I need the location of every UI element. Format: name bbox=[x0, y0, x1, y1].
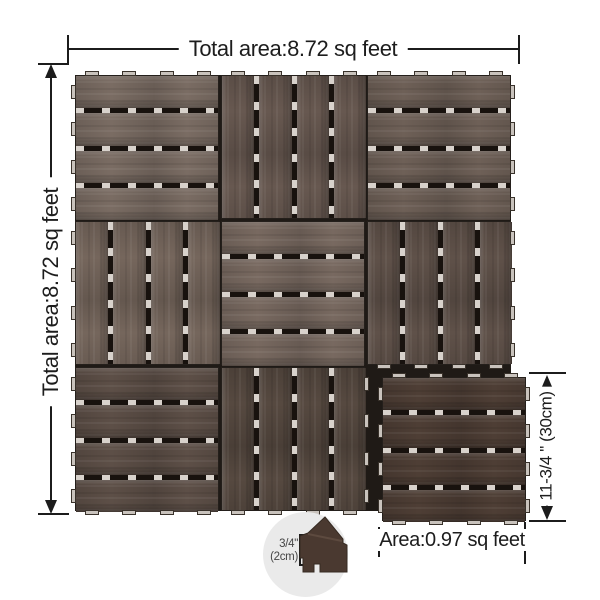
connector-tab bbox=[414, 71, 428, 76]
tile-slat bbox=[188, 222, 220, 364]
connector-tab bbox=[197, 510, 211, 515]
tile-slat bbox=[405, 222, 437, 364]
connector-tab bbox=[467, 520, 481, 525]
connector-tab bbox=[71, 377, 76, 391]
deck-tile bbox=[382, 377, 526, 521]
connector-tab bbox=[71, 197, 76, 211]
tile-slat bbox=[259, 368, 291, 510]
tile-slat bbox=[383, 490, 525, 522]
deck-tile bbox=[75, 221, 219, 365]
tile-slat bbox=[76, 151, 218, 183]
connector-tab bbox=[510, 343, 515, 357]
connector-tab bbox=[378, 499, 383, 513]
connector-tab bbox=[378, 462, 383, 476]
connector-tab bbox=[510, 268, 515, 282]
tile-slat bbox=[222, 222, 364, 254]
tile-slat bbox=[222, 259, 364, 291]
down-arrowhead bbox=[45, 500, 57, 514]
tile-slat bbox=[222, 334, 364, 366]
connector-tab bbox=[231, 510, 245, 515]
tile-slat bbox=[222, 368, 254, 510]
tile-slat bbox=[334, 76, 366, 218]
total-width-label: Total area:8.72 sq feet bbox=[179, 37, 408, 61]
connector-tab bbox=[429, 373, 443, 378]
tile-area-label: Area:0.97 sq feet bbox=[374, 529, 530, 551]
connector-tab bbox=[343, 71, 357, 76]
tile-slat bbox=[368, 113, 510, 145]
connector-tab bbox=[268, 510, 282, 515]
tile-profile-icon bbox=[298, 515, 350, 575]
tile-slat bbox=[76, 368, 218, 400]
tile-slat bbox=[383, 453, 525, 485]
tile-slat bbox=[222, 76, 254, 218]
connector-tab bbox=[71, 306, 76, 320]
tile-slat bbox=[383, 378, 525, 410]
connector-tab bbox=[378, 387, 383, 401]
connector-tab bbox=[504, 373, 518, 378]
tile-slat bbox=[368, 76, 510, 108]
connector-tab bbox=[525, 462, 530, 476]
deck-tile bbox=[367, 221, 511, 365]
connector-tab bbox=[71, 489, 76, 503]
tile-slat bbox=[368, 188, 510, 220]
connector-tab bbox=[510, 160, 515, 174]
tile-grid bbox=[0, 0, 600, 600]
deck-tile bbox=[221, 221, 365, 365]
connector-tab bbox=[392, 520, 406, 525]
connector-tab bbox=[377, 364, 391, 369]
connector-tab bbox=[510, 231, 515, 245]
connector-tab bbox=[504, 520, 518, 525]
connector-tab bbox=[85, 71, 99, 76]
tile-slat bbox=[368, 151, 510, 183]
connector-tab bbox=[71, 452, 76, 466]
tile-slat bbox=[383, 415, 525, 447]
connector-tab bbox=[71, 343, 76, 357]
connector-tab bbox=[268, 71, 282, 76]
connector-tab bbox=[414, 364, 428, 369]
connector-tab bbox=[452, 364, 466, 369]
thickness-metric: (2cm) bbox=[265, 551, 298, 564]
connector-tab bbox=[378, 424, 383, 438]
connector-tab bbox=[489, 364, 503, 369]
connector-tab bbox=[525, 424, 530, 438]
connector-tab bbox=[71, 231, 76, 245]
connector-tab bbox=[122, 71, 136, 76]
tile-height-bottom-ext bbox=[529, 520, 566, 522]
tile-slat bbox=[76, 188, 218, 220]
deck-tile bbox=[367, 75, 511, 219]
connector-tab bbox=[510, 197, 515, 211]
connector-tab bbox=[452, 71, 466, 76]
connector-tab bbox=[392, 373, 406, 378]
connector-tab bbox=[231, 71, 245, 76]
connector-tab bbox=[197, 71, 211, 76]
tile-slat bbox=[297, 76, 329, 218]
product-dimension-diagram: Total area:8.72 sq feet Total area:8.72 … bbox=[0, 0, 600, 600]
deck-tile bbox=[75, 367, 219, 511]
thickness-label: 3/4" (2cm) bbox=[265, 538, 298, 564]
connector-tab bbox=[510, 85, 515, 99]
tile-slat bbox=[368, 222, 400, 364]
tile-slat bbox=[334, 368, 366, 510]
connector-tab bbox=[364, 489, 369, 503]
connector-tab bbox=[85, 510, 99, 515]
connector-tab bbox=[429, 520, 443, 525]
connector-tab bbox=[306, 71, 320, 76]
tile-height-top-ext bbox=[529, 372, 566, 374]
connector-tab bbox=[71, 268, 76, 282]
left-dim-bottom-tick bbox=[38, 513, 69, 515]
connector-tab bbox=[525, 499, 530, 513]
tile-slat bbox=[76, 222, 108, 364]
thickness-value: 3/4" bbox=[265, 538, 298, 551]
tile-slat bbox=[222, 297, 364, 329]
tile-slat bbox=[76, 405, 218, 437]
tile-slat bbox=[151, 222, 183, 364]
connector-tab bbox=[364, 452, 369, 466]
connector-tab bbox=[510, 306, 515, 320]
connector-tab bbox=[364, 377, 369, 391]
tile-slat bbox=[76, 443, 218, 475]
connector-tab bbox=[489, 71, 503, 76]
connector-tab bbox=[364, 414, 369, 428]
tile-slat bbox=[76, 480, 218, 512]
up-arrowhead bbox=[45, 64, 57, 78]
deck-tile bbox=[221, 367, 365, 511]
connector-tab bbox=[122, 510, 136, 515]
connector-tab bbox=[377, 71, 391, 76]
tile-slat bbox=[443, 222, 475, 364]
connector-tab bbox=[160, 71, 174, 76]
tile-slat bbox=[76, 113, 218, 145]
connector-tab bbox=[71, 122, 76, 136]
connector-tab bbox=[71, 85, 76, 99]
connector-tab bbox=[71, 160, 76, 174]
tile-slat bbox=[259, 76, 291, 218]
total-height-label: Total area:8.72 sq feet bbox=[39, 178, 63, 407]
connector-tab bbox=[160, 510, 174, 515]
tile-slat bbox=[113, 222, 145, 364]
tile-slat bbox=[480, 222, 512, 364]
connector-tab bbox=[467, 373, 481, 378]
connector-tab bbox=[510, 122, 515, 136]
connector-tab bbox=[525, 387, 530, 401]
deck-tile bbox=[221, 75, 365, 219]
top-dim-right-tick bbox=[518, 35, 520, 64]
tile-slat bbox=[76, 76, 218, 108]
tile-slat bbox=[297, 368, 329, 510]
down-arrowhead bbox=[541, 506, 553, 520]
connector-tab bbox=[71, 414, 76, 428]
tile-side-label: 11-3/4 " (30cm) bbox=[538, 386, 557, 505]
deck-tile bbox=[75, 75, 219, 219]
thickness-inset-circle: 3/4" (2cm) bbox=[263, 512, 348, 597]
